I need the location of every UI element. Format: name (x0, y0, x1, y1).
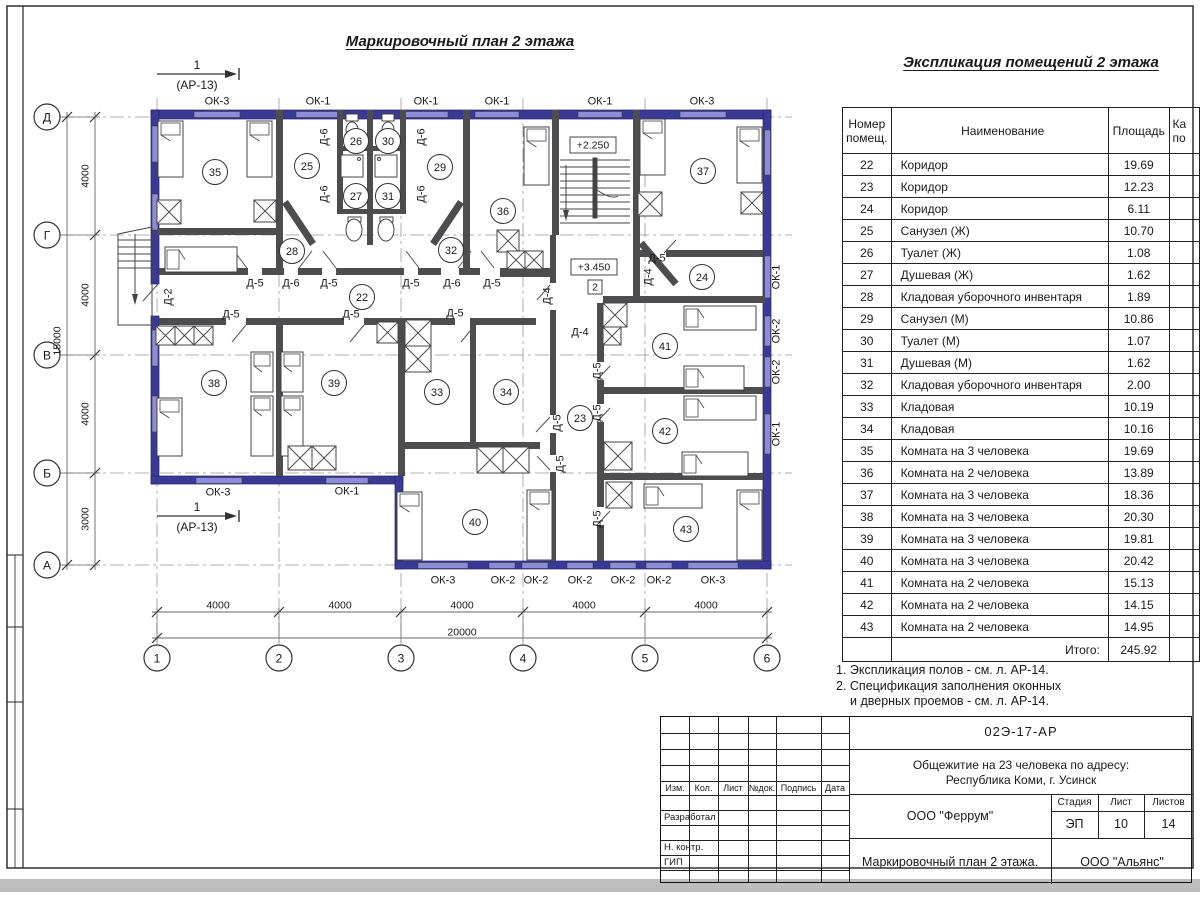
room-number-cell: 27 (843, 264, 892, 286)
dimension-text: 4000 (572, 600, 596, 612)
room-area-cell: 20.42 (1108, 550, 1169, 572)
bed (682, 452, 748, 476)
room-cat-cell (1169, 286, 1199, 308)
dimension-text: 4000 (328, 600, 352, 612)
room-number: 31 (382, 191, 394, 203)
wardrobe (157, 200, 181, 224)
room-cat-cell (1169, 594, 1199, 616)
room-area-cell: 2.00 (1108, 374, 1169, 396)
room-area-cell: 1.08 (1108, 242, 1169, 264)
mark-label: ОК-2 (647, 575, 672, 587)
mark-label: ОК-1 (306, 96, 331, 108)
table-row: 40Комната на 3 человека20.42 (843, 550, 1200, 572)
room-name-cell: Комната на 3 человека (891, 484, 1108, 506)
room-cat-cell (1169, 242, 1199, 264)
mark-label: Д-5 (342, 309, 359, 321)
room-cat-cell (1169, 484, 1199, 506)
section-marker-ref: (АР-13) (176, 78, 217, 92)
dimension-text: 4000 (80, 283, 92, 307)
wardrobe (175, 326, 194, 345)
room-number-cell: 29 (843, 308, 892, 330)
mark-label: Д-6 (443, 278, 460, 290)
room-number: 43 (680, 524, 692, 536)
room-name-cell: Коридор (891, 154, 1108, 176)
room-area-cell: 18.36 (1108, 484, 1169, 506)
revision-col-label: Кол. (689, 783, 718, 793)
room-number: 34 (500, 387, 512, 399)
room-number: 38 (208, 378, 220, 390)
room-number-cell: 26 (843, 242, 892, 264)
mark-label: Д-5 (402, 278, 419, 290)
dimension-text: 20000 (447, 627, 476, 639)
bed (251, 396, 273, 456)
room-area-cell: 15.13 (1108, 572, 1169, 594)
axis-col-label: 1 (154, 652, 161, 666)
external-staircase (118, 227, 152, 325)
mark-label: ОК-2 (491, 575, 516, 587)
room-name-cell: Туалет (Ж) (891, 242, 1108, 264)
bed (251, 352, 273, 392)
table-row: 43Комната на 2 человека14.95 (843, 616, 1200, 638)
axis-row-label: Б (43, 467, 51, 481)
room-number: 35 (209, 167, 221, 179)
axis-row-label: Д (43, 111, 51, 125)
room-cat-cell (1169, 418, 1199, 440)
section-marker-ref: (АР-13) (176, 520, 217, 534)
sheet-value: 10 (1098, 817, 1144, 831)
revision-col-label: Дата (821, 783, 849, 793)
wardrobe (741, 192, 763, 214)
project-object: Общежитие на 23 человека по адресу:Респу… (849, 758, 1193, 788)
room-name-cell: Туалет (М) (891, 330, 1108, 352)
wardrobe (525, 251, 543, 269)
wardrobe (606, 482, 632, 508)
room-name-cell: Комната на 2 человека (891, 594, 1108, 616)
table-row: 23Коридор12.23 (843, 176, 1200, 198)
room-name-cell: Комната на 3 человека (891, 440, 1108, 462)
room-area-cell: 19.81 (1108, 528, 1169, 550)
bed (524, 127, 549, 185)
wardrobe (156, 326, 175, 345)
room-area-cell: 1.62 (1108, 352, 1169, 374)
room-name-cell: Коридор (891, 198, 1108, 220)
mark-label: Д-4 (571, 327, 588, 339)
dimension-text: 3000 (80, 507, 92, 531)
dimension-text: 4000 (450, 600, 474, 612)
room-area-cell: 10.86 (1108, 308, 1169, 330)
room-name-cell: Душевая (М) (891, 352, 1108, 374)
mark-label: Д-2 (163, 288, 175, 305)
room-area-cell: 13.89 (1108, 462, 1169, 484)
room-number-cell: 22 (843, 154, 892, 176)
bed (527, 490, 552, 560)
role-developer: Разработал (664, 812, 716, 823)
table-row: 22Коридор19.69 (843, 154, 1200, 176)
title-block: Изм.Кол.Лист№док.ПодписьДата Разработал … (660, 716, 1192, 883)
table-title: Экспликация помещений 2 этажа (870, 54, 1192, 71)
mark-label: ОК-1 (771, 422, 783, 447)
axis-row-label: В (43, 349, 51, 363)
room-name-cell: Комната на 2 человека (891, 462, 1108, 484)
wardrobe (604, 442, 632, 470)
mark-label: ОК-1 (335, 486, 360, 498)
room-area-cell: 6.11 (1108, 198, 1169, 220)
room-number-cell: 25 (843, 220, 892, 242)
room-number: 41 (659, 341, 671, 353)
room-area-cell: 20.30 (1108, 506, 1169, 528)
wardrobe (638, 192, 662, 216)
mark-label: ОК-2 (771, 319, 783, 344)
contractor-org: ООО "Альянс" (1051, 855, 1193, 869)
mark-label: ОК-1 (485, 96, 510, 108)
table-row: 29Санузел (М)10.86 (843, 308, 1200, 330)
mark-label: Д-5 (592, 362, 604, 379)
room-number-cell: 38 (843, 506, 892, 528)
table-header-row: Номерпомещ. Наименование Площадь Капо (843, 108, 1200, 154)
room-area-cell: 10.19 (1108, 396, 1169, 418)
table-row: 33Кладовая10.19 (843, 396, 1200, 418)
room-cat-cell (1169, 550, 1199, 572)
mark-label: ОК-1 (588, 96, 613, 108)
room-number-cell: 33 (843, 396, 892, 418)
mark-label: ОК-2 (524, 575, 549, 587)
mark-label: Д-5 (592, 510, 604, 527)
revision-col-label: №док. (748, 783, 776, 793)
section-marker-number: 1 (194, 500, 201, 514)
wardrobe (254, 200, 276, 222)
room-number-cell: 40 (843, 550, 892, 572)
table-row: 27Душевая (Ж)1.62 (843, 264, 1200, 286)
wardrobe (603, 327, 621, 345)
stage-label: Стадия (1051, 797, 1098, 808)
note-line: и дверных проемов - см. л. АР-14. (850, 694, 1176, 710)
room-number: 36 (497, 206, 509, 218)
mark-label: ОК-2 (771, 360, 783, 385)
mark-label: Д-5 (555, 455, 567, 472)
mark-label: Д-4 (643, 268, 655, 285)
room-cat-cell (1169, 506, 1199, 528)
mark-label: ОК-3 (431, 575, 456, 587)
wardrobe (603, 303, 627, 327)
main-staircase (560, 158, 630, 223)
rooms-table-wrap: Номерпомещ. Наименование Площадь Капо 22… (842, 107, 1200, 662)
bed (737, 127, 762, 183)
revision-col-label: Изм. (661, 783, 689, 793)
role-gip: ГИП (664, 857, 683, 868)
wardrobe (194, 326, 213, 345)
elevation-value: 2 (592, 282, 598, 294)
wardrobe (288, 446, 312, 470)
bed (397, 492, 422, 560)
room-number-cell: 43 (843, 616, 892, 638)
mark-label: ОК-3 (690, 96, 715, 108)
revision-col-label: Лист (718, 783, 748, 793)
dimension-text: 4000 (206, 600, 230, 612)
axis-col-label: 2 (276, 652, 283, 666)
total-cat-cell (1169, 638, 1199, 662)
room-number-cell: 42 (843, 594, 892, 616)
room-number: 23 (574, 413, 586, 425)
room-number: 29 (434, 162, 446, 174)
total-value: 245.92 (1108, 638, 1169, 662)
mark-label: ОК-1 (771, 265, 783, 290)
mark-label: ОК-2 (611, 575, 636, 587)
mark-label: Д-5 (222, 309, 239, 321)
mark-label: Д-4 (542, 287, 554, 304)
axis-col-label: 5 (642, 652, 649, 666)
room-number-cell: 31 (843, 352, 892, 374)
room-cat-cell (1169, 440, 1199, 462)
room-number-cell: 32 (843, 374, 892, 396)
room-cat-cell (1169, 396, 1199, 418)
bed (684, 366, 744, 390)
room-name-cell: Комната на 3 человека (891, 528, 1108, 550)
table-row: 28Кладовая уборочного инвентаря1.89 (843, 286, 1200, 308)
elevation-value: +2.250 (577, 140, 610, 152)
room-cat-cell (1169, 154, 1199, 176)
room-number-cell: 28 (843, 286, 892, 308)
total-empty-cell (843, 638, 892, 662)
total-label: Итого: (891, 638, 1108, 662)
table-row: 38Комната на 3 человека20.30 (843, 506, 1200, 528)
room-name-cell: Комната на 3 человека (891, 506, 1108, 528)
col-header-area: Площадь (1108, 108, 1169, 154)
room-number-cell: 24 (843, 198, 892, 220)
wardrobe (377, 322, 398, 343)
room-area-cell: 1.62 (1108, 264, 1169, 286)
room-number-cell: 41 (843, 572, 892, 594)
bed (281, 352, 303, 392)
axis-col-label: 6 (764, 652, 771, 666)
wardrobe (507, 251, 525, 269)
table-row: 34Кладовая10.16 (843, 418, 1200, 440)
axis-row-label: А (43, 559, 51, 573)
col-header-category: Капо (1169, 108, 1199, 154)
table-row: 35Комната на 3 человека19.69 (843, 440, 1200, 462)
dimension-text: 4000 (80, 402, 92, 426)
room-number-cell: 30 (843, 330, 892, 352)
table-row: 42Комната на 2 человека14.15 (843, 594, 1200, 616)
table-row: 31Душевая (М)1.62 (843, 352, 1200, 374)
mark-label: Д-5 (246, 278, 263, 290)
mark-label: Д-5 (592, 404, 604, 421)
bed (247, 121, 272, 177)
bed (684, 306, 756, 330)
room-area-cell: 14.15 (1108, 594, 1169, 616)
wardrobe (405, 320, 431, 346)
room-number-cell: 37 (843, 484, 892, 506)
document-number: 02Э-17-АР (849, 724, 1193, 739)
plan-title: Маркировочный план 2 этажа (310, 33, 610, 50)
room-cat-cell (1169, 462, 1199, 484)
sheets-label: Листов (1144, 797, 1193, 808)
drawing-sheet: { "titles": { "plan": "Маркировочный пла… (0, 0, 1200, 900)
table-row: 25Санузел (Ж)10.70 (843, 220, 1200, 242)
mark-label: Д-5 (483, 278, 500, 290)
room-number-cell: 34 (843, 418, 892, 440)
room-area-cell: 19.69 (1108, 440, 1169, 462)
rooms-table-body: 22Коридор19.6923Коридор12.2324Коридор6.1… (843, 154, 1200, 638)
mark-label: Д-5 (446, 308, 463, 320)
room-number-cell: 35 (843, 440, 892, 462)
room-name-cell: Кладовая (891, 396, 1108, 418)
bed (684, 396, 756, 420)
room-number: 30 (382, 136, 394, 148)
note-line: 1. Экспликация полов - см. л. АР-14. (836, 663, 1176, 679)
mark-label: ОК-3 (205, 96, 230, 108)
room-cat-cell (1169, 198, 1199, 220)
dimension-text: 4000 (80, 164, 92, 188)
section-marker-number: 1 (194, 58, 201, 72)
room-number: 22 (356, 292, 368, 304)
col-header-name: Наименование (891, 108, 1108, 154)
bed (157, 398, 182, 456)
room-cat-cell (1169, 176, 1199, 198)
mark-label: Д-6 (319, 185, 331, 202)
sheet-label: Лист (1098, 797, 1144, 808)
room-area-cell: 10.16 (1108, 418, 1169, 440)
axis-row-label: Г (44, 229, 51, 243)
room-number: 33 (431, 387, 443, 399)
wardrobe (405, 346, 431, 372)
bed (158, 121, 183, 177)
notes-block: 1. Экспликация полов - см. л. АР-14. 2. … (836, 663, 1176, 710)
axis-col-label: 3 (398, 652, 405, 666)
room-cat-cell (1169, 220, 1199, 242)
table-row: 26Туалет (Ж)1.08 (843, 242, 1200, 264)
room-number: 24 (696, 272, 708, 284)
elevation-value: +3.450 (578, 262, 611, 274)
mark-label: Д-6 (416, 128, 428, 145)
col-header-number: Номерпомещ. (843, 108, 892, 154)
room-area-cell: 10.70 (1108, 220, 1169, 242)
room-area-cell: 19.69 (1108, 154, 1169, 176)
mark-label: ОК-3 (206, 487, 231, 499)
room-cat-cell (1169, 264, 1199, 286)
room-number: 37 (697, 166, 709, 178)
table-row: 30Туалет (М)1.07 (843, 330, 1200, 352)
wardrobe (497, 230, 519, 252)
room-cat-cell (1169, 572, 1199, 594)
dimension-text: 15000 (52, 326, 64, 355)
revision-col-label: Подпись (776, 783, 821, 793)
room-cat-cell (1169, 330, 1199, 352)
mark-label: Д-5 (552, 414, 564, 431)
room-cat-cell (1169, 374, 1199, 396)
wardrobe (503, 447, 529, 473)
mark-label: Д-6 (282, 278, 299, 290)
room-cat-cell (1169, 616, 1199, 638)
table-row: 24Коридор6.11 (843, 198, 1200, 220)
stage-value: ЭП (1051, 817, 1098, 831)
room-cat-cell (1169, 528, 1199, 550)
room-number-cell: 36 (843, 462, 892, 484)
mark-label: Д-5 (648, 253, 665, 265)
wardrobe (477, 447, 503, 473)
mark-label: Д-6 (416, 185, 428, 202)
mark-label: ОК-1 (414, 96, 439, 108)
room-number: 32 (445, 245, 457, 257)
wardrobe (312, 446, 336, 470)
room-area-cell: 1.07 (1108, 330, 1169, 352)
room-cat-cell (1169, 308, 1199, 330)
table-total-row: Итого: 245.92 (843, 638, 1200, 662)
bed (165, 247, 237, 272)
room-cat-cell (1169, 352, 1199, 374)
room-name-cell: Комната на 2 человека (891, 616, 1108, 638)
room-number: 28 (286, 246, 298, 258)
room-name-cell: Комната на 2 человека (891, 572, 1108, 594)
table-row: 36Комната на 2 человека13.89 (843, 462, 1200, 484)
table-row: 32Кладовая уборочного инвентаря2.00 (843, 374, 1200, 396)
room-number: 40 (469, 517, 481, 529)
room-name-cell: Кладовая уборочного инвентаря (891, 286, 1108, 308)
room-number: 42 (659, 426, 671, 438)
rooms-table: Номерпомещ. Наименование Площадь Капо 22… (842, 107, 1200, 662)
dimension-text: 4000 (694, 600, 718, 612)
room-name-cell: Санузел (Ж) (891, 220, 1108, 242)
room-area-cell: 14.95 (1108, 616, 1169, 638)
table-row: 41Комната на 2 человека15.13 (843, 572, 1200, 594)
sheets-value: 14 (1144, 817, 1193, 831)
mark-label: ОК-3 (701, 575, 726, 587)
room-number: 26 (350, 136, 362, 148)
bed (644, 484, 702, 508)
bed (737, 490, 762, 560)
room-area-cell: 12.23 (1108, 176, 1169, 198)
room-name-cell: Душевая (Ж) (891, 264, 1108, 286)
stamp-sheet-title: Маркировочный план 2 этажа. (849, 855, 1051, 869)
room-number: 39 (328, 378, 340, 390)
table-row: 37Комната на 3 человека18.36 (843, 484, 1200, 506)
bed (640, 119, 665, 175)
note-line: 2. Спецификация заполнения оконных (836, 679, 1176, 695)
room-name-cell: Комната на 3 человека (891, 550, 1108, 572)
mark-label: Д-5 (320, 278, 337, 290)
role-ncontrol: Н. контр. (664, 842, 703, 853)
room-number-cell: 23 (843, 176, 892, 198)
mark-label: ОК-2 (568, 575, 593, 587)
table-row: 39Комната на 3 человека19.81 (843, 528, 1200, 550)
room-number: 27 (350, 191, 362, 203)
room-name-cell: Кладовая уборочного инвентаря (891, 374, 1108, 396)
room-number: 25 (301, 161, 313, 173)
room-name-cell: Санузел (М) (891, 308, 1108, 330)
room-name-cell: Кладовая (891, 418, 1108, 440)
room-number-cell: 39 (843, 528, 892, 550)
room-name-cell: Коридор (891, 176, 1108, 198)
room-area-cell: 1.89 (1108, 286, 1169, 308)
mark-label: Д-6 (319, 128, 331, 145)
axis-col-label: 4 (520, 652, 527, 666)
designer-org: ООО "Феррум" (849, 809, 1051, 823)
